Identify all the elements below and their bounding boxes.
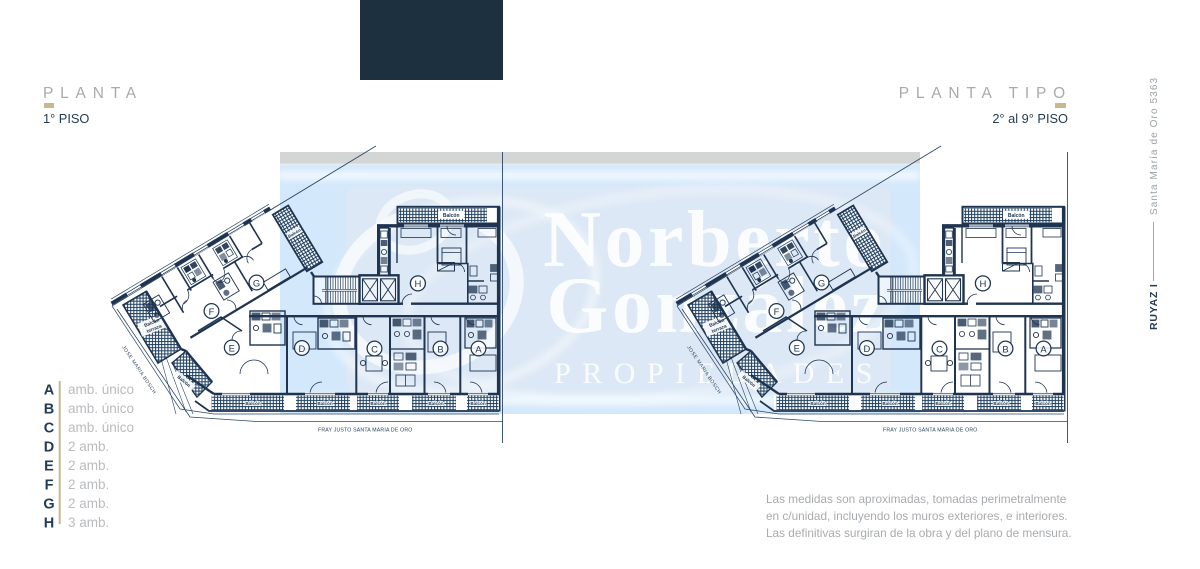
svg-text:amb. único: amb. único <box>68 420 134 435</box>
svg-text:PROPIEDADES: PROPIEDADES <box>554 357 884 390</box>
svg-text:en c/unidad, incluyendo los mu: en c/unidad, incluyendo los muros exteri… <box>766 509 1068 523</box>
svg-text:Las definitivas surgiran de la: Las definitivas surgiran de la obra y de… <box>766 526 1072 540</box>
svg-text:2 amb.: 2 amb. <box>68 439 109 454</box>
svg-text:2 amb.: 2 amb. <box>68 477 109 492</box>
svg-text:D: D <box>44 440 54 456</box>
svg-text:RUYAZ I: RUYAZ I <box>1148 283 1160 330</box>
svg-text:Las medidas son aproximadas, t: Las medidas son aproximadas, tomadas per… <box>766 492 1067 506</box>
svg-text:F: F <box>45 478 54 494</box>
svg-text:3 amb.: 3 amb. <box>68 515 109 530</box>
svg-text:2 amb.: 2 amb. <box>68 496 109 511</box>
svg-text:G: G <box>43 497 54 513</box>
svg-text:amb. único: amb. único <box>68 401 134 416</box>
svg-text:PLANTA TIPO: PLANTA TIPO <box>899 85 1072 102</box>
svg-text:C: C <box>44 421 55 437</box>
svg-text:1° PISO: 1° PISO <box>43 111 89 126</box>
svg-text:2 amb.: 2 amb. <box>68 458 109 473</box>
svg-text:E: E <box>44 459 54 475</box>
svg-text:PLANTA: PLANTA <box>43 85 143 102</box>
svg-text:B: B <box>44 402 54 418</box>
svg-text:amb. único: amb. único <box>68 382 134 397</box>
svg-text:2° al 9° PISO: 2° al 9° PISO <box>992 111 1068 126</box>
svg-text:Santa María de Oro 5363: Santa María de Oro 5363 <box>1149 77 1160 215</box>
svg-text:A: A <box>44 383 55 399</box>
svg-text:H: H <box>44 516 54 532</box>
